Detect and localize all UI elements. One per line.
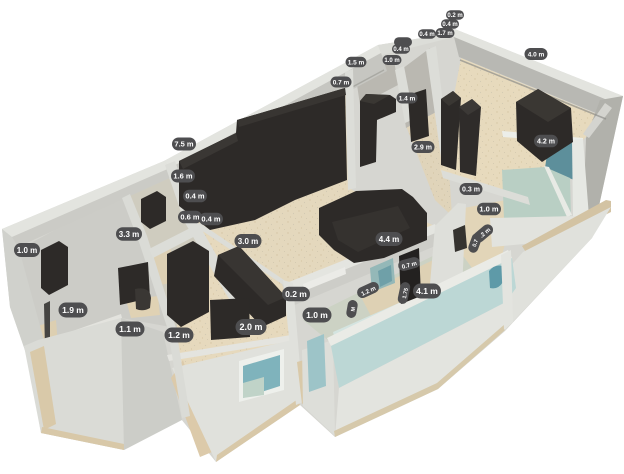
svg-text:4.4 m: 4.4 m bbox=[379, 235, 399, 244]
svg-text:1.1 m: 1.1 m bbox=[119, 324, 141, 334]
svg-text:2.9 m: 2.9 m bbox=[414, 145, 432, 152]
svg-text:4.0 m: 4.0 m bbox=[528, 51, 545, 58]
svg-text:3.0 m: 3.0 m bbox=[238, 237, 258, 246]
svg-text:1.7 m: 1.7 m bbox=[437, 31, 452, 37]
svg-text:1.9 m: 1.9 m bbox=[62, 305, 84, 315]
svg-text:0.2 m: 0.2 m bbox=[447, 13, 462, 19]
svg-text:0.6 m: 0.6 m bbox=[180, 213, 200, 222]
svg-text:1.4 m: 1.4 m bbox=[399, 95, 416, 102]
svg-text:0.4 m: 0.4 m bbox=[201, 215, 221, 224]
svg-text:0.3 m: 0.3 m bbox=[462, 187, 480, 194]
svg-text:0.4 m: 0.4 m bbox=[393, 47, 408, 53]
svg-text:7.5 m: 7.5 m bbox=[174, 140, 194, 149]
svg-text:0.4 m: 0.4 m bbox=[419, 32, 434, 38]
svg-text:0.2 m: 0.2 m bbox=[285, 289, 307, 299]
svg-text:0.7 m: 0.7 m bbox=[333, 79, 350, 86]
svg-text:1.0 m: 1.0 m bbox=[306, 310, 328, 320]
svg-text:1.5 m: 1.5 m bbox=[348, 59, 365, 66]
svg-text:1.0 m: 1.0 m bbox=[479, 205, 499, 214]
svg-text:4.1 m: 4.1 m bbox=[416, 286, 438, 296]
svg-text:0.4 m: 0.4 m bbox=[185, 192, 205, 201]
svg-text:1.0 m: 1.0 m bbox=[384, 58, 399, 64]
svg-text:1.2 m: 1.2 m bbox=[168, 330, 190, 340]
svg-text:3.3 m: 3.3 m bbox=[119, 230, 139, 239]
svg-text:1.0 m: 1.0 m bbox=[17, 246, 37, 255]
svg-text:2.0 m: 2.0 m bbox=[239, 322, 262, 332]
svg-text:0.4 m: 0.4 m bbox=[442, 22, 457, 28]
svg-text:4.2 m: 4.2 m bbox=[537, 139, 555, 146]
svg-text:1.6 m: 1.6 m bbox=[173, 172, 193, 181]
